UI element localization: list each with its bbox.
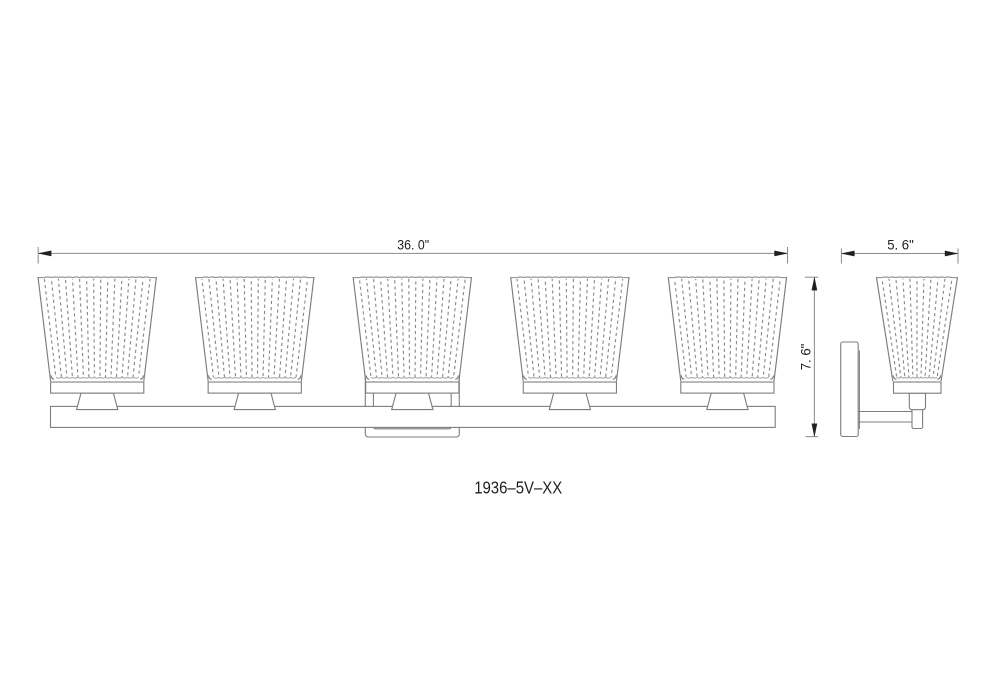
svg-text:36. 0": 36. 0" bbox=[397, 238, 429, 254]
svg-text:7. 6": 7. 6" bbox=[798, 344, 814, 371]
svg-text:1936–5V–XX: 1936–5V–XX bbox=[474, 478, 562, 498]
svg-text:5. 6": 5. 6" bbox=[887, 237, 914, 253]
